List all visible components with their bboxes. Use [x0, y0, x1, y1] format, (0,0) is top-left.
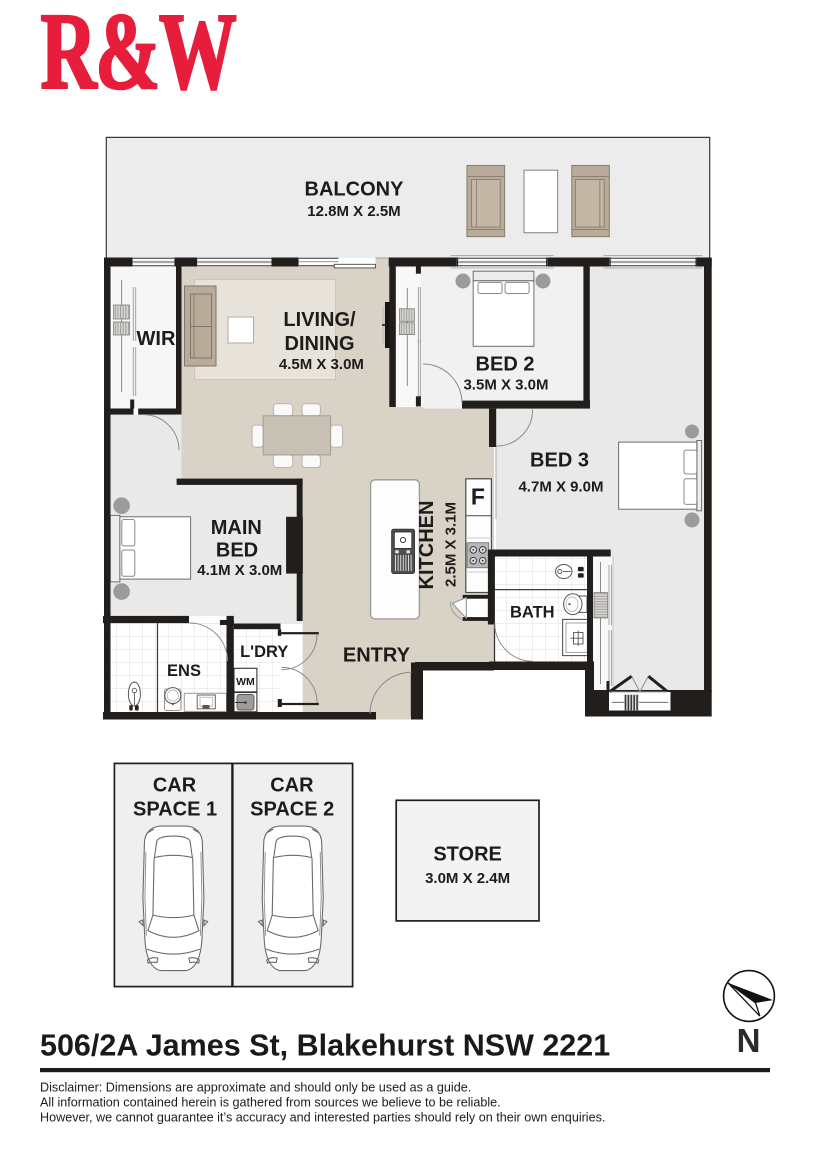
svg-text:L'DRY: L'DRY: [240, 643, 288, 661]
svg-text:ENTRY: ENTRY: [343, 645, 411, 667]
svg-text:CAR: CAR: [270, 775, 314, 797]
svg-text:WM: WM: [236, 676, 255, 688]
svg-text:3.0M X 2.4M: 3.0M X 2.4M: [425, 870, 510, 887]
svg-text:N: N: [737, 1022, 761, 1059]
svg-text:3.5M X 3.0M: 3.5M X 3.0M: [463, 377, 548, 394]
svg-text:DINING: DINING: [285, 333, 355, 355]
svg-text:BED: BED: [216, 540, 258, 562]
svg-text:4.1M X 3.0M: 4.1M X 3.0M: [197, 562, 282, 579]
svg-text:4.5M X 3.0M: 4.5M X 3.0M: [279, 356, 364, 373]
svg-text:Disclaimer: Dimensions are app: Disclaimer: Dimensions are approximate a…: [40, 1081, 471, 1095]
svg-text:All information contained here: All information contained herein is gath…: [40, 1096, 501, 1110]
svg-text:LIVING/: LIVING/: [283, 309, 356, 331]
svg-text:SPACE 2: SPACE 2: [250, 799, 334, 821]
svg-text:ENS: ENS: [167, 662, 201, 680]
svg-text:BED 2: BED 2: [476, 354, 535, 376]
svg-text:506/2A James St, Blakehurst NS: 506/2A James St, Blakehurst NSW 2221: [40, 1029, 610, 1063]
svg-text:WIR: WIR: [137, 328, 176, 350]
svg-text:12.8M X 2.5M: 12.8M X 2.5M: [307, 203, 400, 220]
svg-text:2.5M X 3.1M: 2.5M X 3.1M: [443, 502, 460, 587]
svg-text:BATH: BATH: [510, 604, 555, 622]
svg-text:4.7M X 9.0M: 4.7M X 9.0M: [518, 479, 603, 496]
svg-text:KITCHEN: KITCHEN: [416, 501, 438, 590]
svg-text:BED 3: BED 3: [530, 450, 589, 472]
svg-text:STORE: STORE: [433, 844, 502, 866]
svg-text:However, we cannot guarantee i: However, we cannot guarantee it’s accura…: [40, 1111, 605, 1125]
svg-text:BALCONY: BALCONY: [305, 179, 405, 201]
svg-text:SPACE 1: SPACE 1: [133, 799, 217, 821]
svg-text:F: F: [471, 484, 485, 510]
svg-text:MAIN: MAIN: [211, 517, 262, 539]
svg-text:CAR: CAR: [153, 775, 197, 797]
svg-text:R&W: R&W: [41, 0, 237, 112]
